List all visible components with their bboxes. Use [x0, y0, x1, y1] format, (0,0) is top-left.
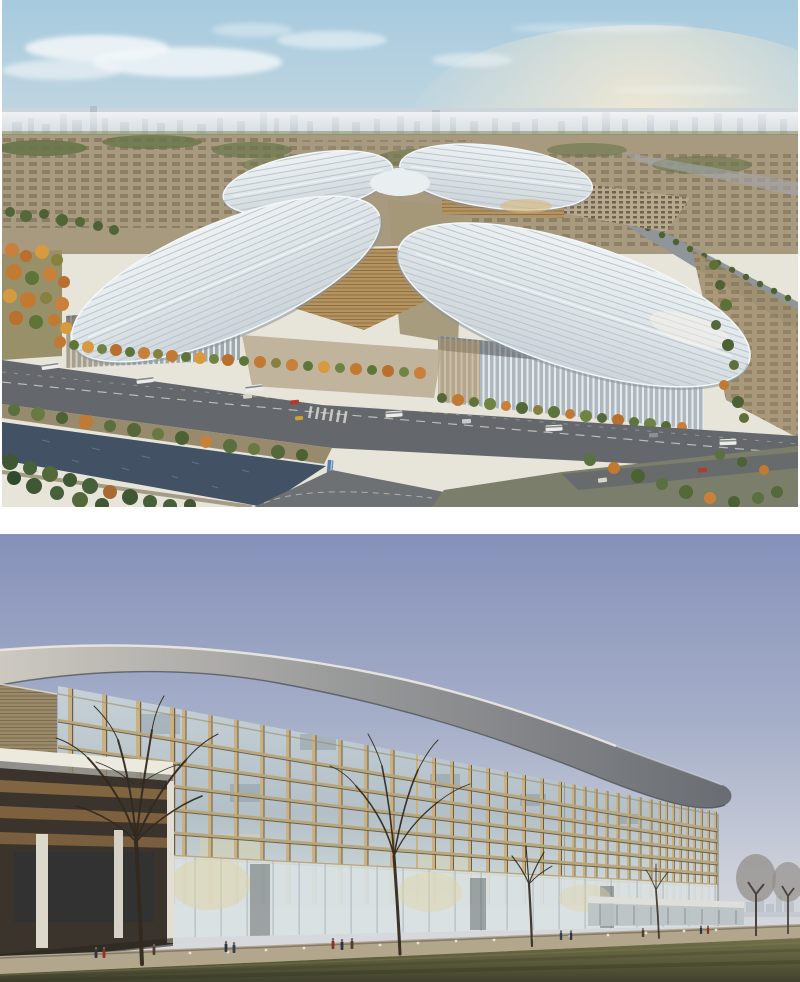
figure-facade-view — [0, 534, 800, 982]
figure-aerial-view — [2, 0, 798, 507]
photo-collage-page — [0, 0, 800, 982]
aerial-rendering — [2, 0, 798, 507]
facade-rendering — [0, 534, 800, 982]
